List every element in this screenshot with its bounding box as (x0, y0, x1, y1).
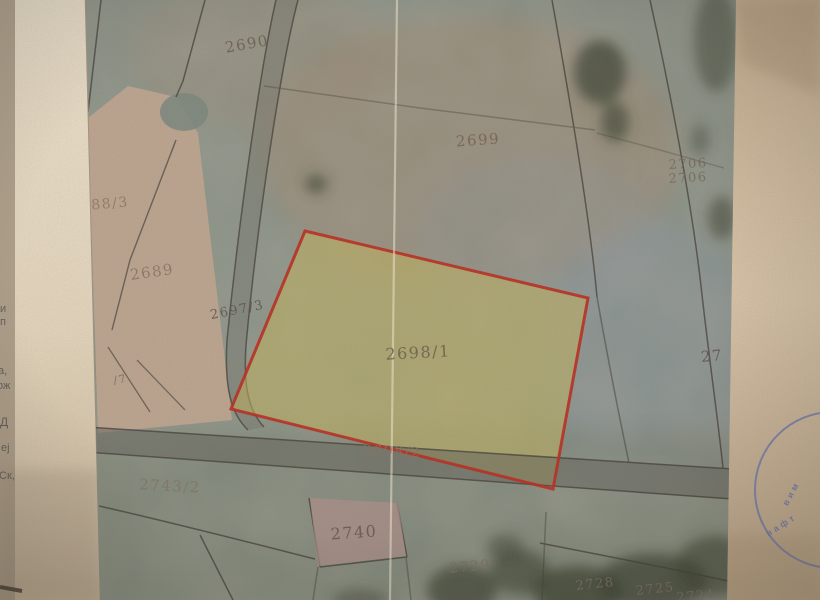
cadastral-map-photo: 2690 2699 2706 2706 88/3 2689 2697/3 269… (0, 0, 820, 600)
photo-grain (0, 0, 820, 600)
map-photo-canvas: 2690 2699 2706 2706 88/3 2689 2697/3 269… (0, 0, 820, 600)
